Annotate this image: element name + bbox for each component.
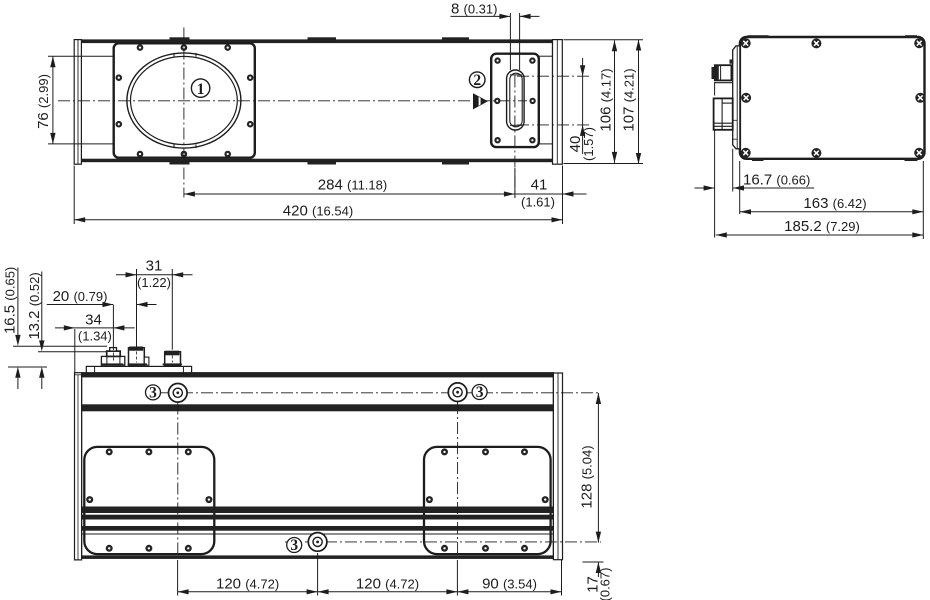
svg-text:3: 3	[149, 385, 157, 402]
svg-text:185.2 (7.29): 185.2 (7.29)	[784, 218, 860, 235]
svg-text:41: 41	[531, 177, 548, 194]
svg-text:106 (4.17): 106 (4.17)	[597, 68, 614, 131]
svg-text:8 (0.31): 8 (0.31)	[451, 1, 497, 18]
svg-text:34: 34	[85, 311, 102, 328]
svg-text:284 (11.18): 284 (11.18)	[318, 177, 387, 194]
svg-text:107 (4.21): 107 (4.21)	[620, 68, 637, 131]
svg-text:(1.34): (1.34)	[78, 329, 112, 344]
svg-text:31: 31	[146, 258, 163, 275]
svg-text:16.7 (0.66): 16.7 (0.66)	[743, 171, 810, 188]
svg-text:(1.61): (1.61)	[521, 195, 555, 210]
svg-text:1: 1	[197, 81, 205, 98]
svg-text:3: 3	[476, 384, 484, 401]
svg-text:90 (3.54): 90 (3.54)	[482, 575, 537, 592]
svg-text:13.2 (0.52): 13.2 (0.52)	[26, 272, 43, 339]
svg-text:420 (16.54): 420 (16.54)	[283, 203, 353, 220]
svg-text:2: 2	[473, 72, 481, 89]
svg-text:120 (4.72): 120 (4.72)	[216, 575, 279, 592]
svg-text:76 (2.99): 76 (2.99)	[35, 74, 52, 129]
svg-text:128 (5.04): 128 (5.04)	[579, 445, 596, 508]
svg-text:163 (6.42): 163 (6.42)	[803, 195, 866, 212]
svg-text:16.5 (0.65): 16.5 (0.65)	[1, 267, 18, 334]
svg-text:120 (4.72): 120 (4.72)	[356, 575, 419, 592]
svg-text:20 (0.79): 20 (0.79)	[53, 288, 108, 305]
svg-text:3: 3	[290, 537, 298, 554]
svg-text:(1.22): (1.22)	[137, 275, 171, 290]
